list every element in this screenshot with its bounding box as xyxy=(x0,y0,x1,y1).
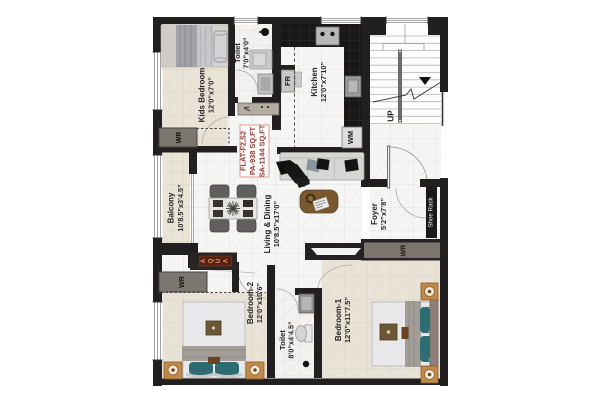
svg-text:Bedroom-1: Bedroom-1 xyxy=(334,298,343,341)
svg-text:Bedroom-2: Bedroom-2 xyxy=(246,281,255,324)
svg-text:Q: Q xyxy=(209,258,215,263)
svg-text:Foyer: Foyer xyxy=(370,203,379,225)
svg-text:A: A xyxy=(224,258,230,263)
svg-text:SA-1144 SQ.FT: SA-1144 SQ.FT xyxy=(258,124,267,177)
svg-text:Shoe Rack: Shoe Rack xyxy=(427,196,434,227)
svg-text:WR: WR xyxy=(176,132,183,144)
svg-text:PA-938 SQ.FT: PA-938 SQ.FT xyxy=(248,126,257,175)
svg-text:FLAT-F2,S2: FLAT-F2,S2 xyxy=(239,131,248,171)
svg-text:7’0”x4’0”: 7’0”x4’0” xyxy=(242,37,251,69)
svg-text:12’0”x10’6”: 12’0”x10’6” xyxy=(255,283,264,324)
svg-text:WR: WR xyxy=(401,245,408,257)
svg-text:U: U xyxy=(216,259,222,263)
svg-text:Kitchen: Kitchen xyxy=(310,67,319,96)
svg-text:12’0”x7’10”: 12’0”x7’10” xyxy=(319,62,328,103)
svg-text:WR: WR xyxy=(179,276,186,288)
svg-text:Kids Bedroom: Kids Bedroom xyxy=(198,68,207,123)
svg-text:8’0”x4’4.5”: 8’0”x4’4.5” xyxy=(287,321,296,359)
svg-text:Balcony: Balcony xyxy=(167,192,176,223)
svg-text:Living & Dining: Living & Dining xyxy=(263,195,272,254)
svg-text:10’8.5”x3’4.5”: 10’8.5”x3’4.5” xyxy=(176,184,185,232)
svg-text:FR: FR xyxy=(283,75,292,86)
svg-text:UP: UP xyxy=(387,110,396,122)
svg-text:5’2”x7’8”: 5’2”x7’8” xyxy=(379,198,388,230)
svg-text:12’0”x11’7.5”: 12’0”x11’7.5” xyxy=(343,297,352,343)
svg-text:10’8.5”x17’0”: 10’8.5”x17’0” xyxy=(272,200,281,247)
svg-text:A: A xyxy=(201,258,207,263)
svg-text:WM: WM xyxy=(346,131,355,144)
svg-text:12’0”x7’0”: 12’0”x7’0” xyxy=(207,77,216,113)
